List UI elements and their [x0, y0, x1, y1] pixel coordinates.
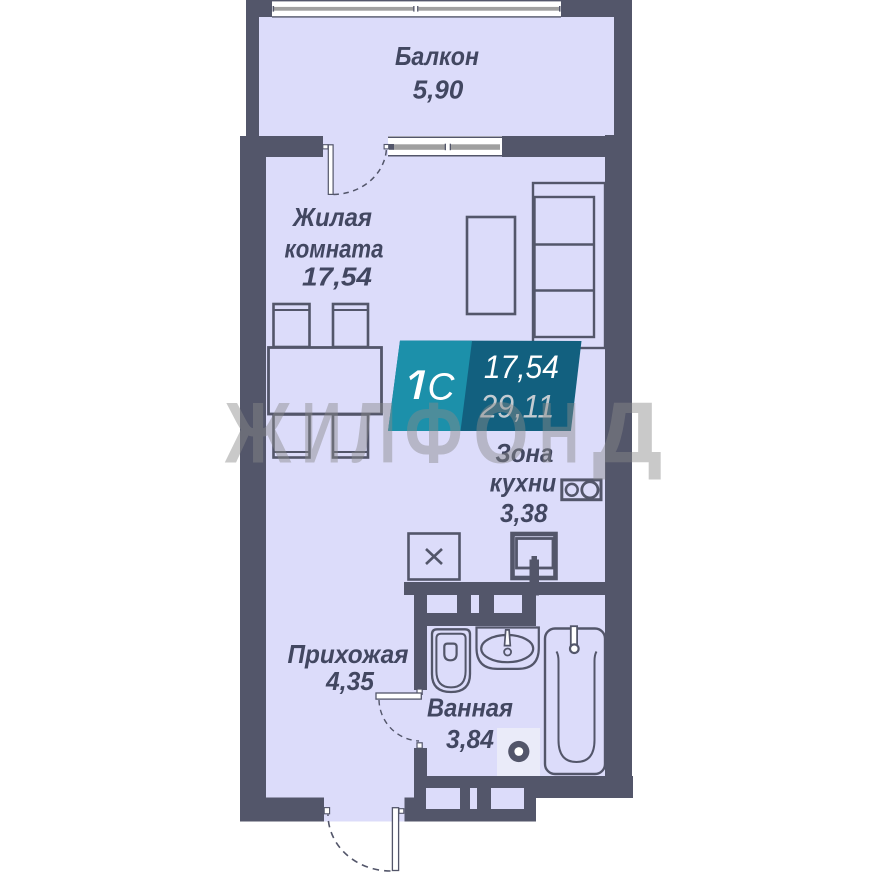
- svg-text:4,35: 4,35: [325, 666, 374, 696]
- svg-text:Жилая: Жилая: [291, 202, 372, 232]
- svg-text:Д: Д: [593, 386, 663, 482]
- svg-text:5,90: 5,90: [413, 75, 464, 105]
- svg-text:Л: Л: [352, 386, 397, 482]
- svg-text:17,54: 17,54: [302, 262, 373, 292]
- svg-text:Прихожая: Прихожая: [288, 639, 409, 669]
- svg-text:О: О: [474, 386, 529, 482]
- svg-text:комната: комната: [285, 234, 384, 264]
- svg-text:Н: Н: [539, 386, 579, 482]
- svg-text:3,38: 3,38: [500, 498, 548, 528]
- svg-text:Ф: Ф: [405, 386, 463, 482]
- svg-text:17,54: 17,54: [484, 349, 559, 385]
- svg-text:И: И: [302, 386, 342, 482]
- svg-text:Ж: Ж: [224, 386, 292, 482]
- svg-text:Ванная: Ванная: [427, 693, 513, 723]
- svg-text:3,84: 3,84: [446, 724, 495, 754]
- svg-text:Балкон: Балкон: [395, 41, 479, 71]
